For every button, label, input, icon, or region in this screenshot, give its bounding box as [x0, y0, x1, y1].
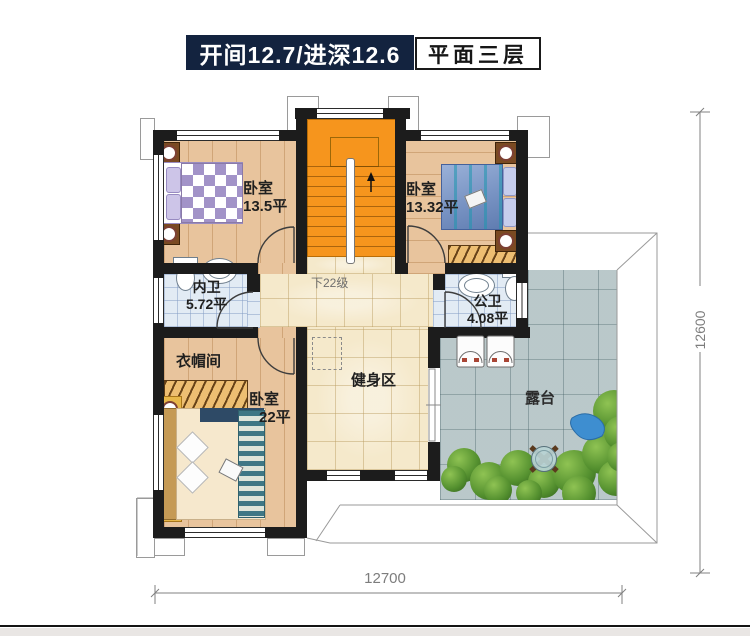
window	[153, 278, 164, 323]
door-threshold	[408, 263, 445, 274]
wall	[153, 141, 164, 155]
window	[395, 470, 427, 481]
divider-line	[0, 625, 750, 627]
room-area: 13.5平	[243, 198, 287, 215]
window	[177, 130, 279, 141]
wall	[433, 274, 445, 290]
room-name: 卧室	[243, 180, 273, 197]
room-area: 4.08平	[467, 310, 508, 326]
window	[516, 283, 528, 318]
room-name: 衣帽间	[176, 353, 221, 370]
wall	[428, 442, 440, 481]
wall	[247, 274, 260, 292]
window	[421, 130, 509, 141]
floor-plan-page: 开间12.7/进深12.6 平面三层	[0, 0, 750, 636]
door-threshold	[247, 292, 260, 328]
wall	[153, 240, 164, 278]
wall	[516, 141, 528, 283]
door-threshold	[258, 263, 296, 274]
label-public-bathroom: 公卫 4.08平	[467, 293, 508, 327]
wall	[153, 130, 177, 141]
wall	[360, 470, 395, 481]
room-name: 卧室	[406, 181, 436, 198]
pillow	[166, 194, 181, 220]
lamp-icon	[498, 233, 514, 249]
wall	[296, 327, 307, 338]
divider-band	[0, 628, 750, 636]
plan-dimensions-title: 开间12.7/进深12.6	[186, 35, 414, 70]
label-bedroom-top-left: 卧室 13.5平	[243, 180, 287, 217]
wall	[428, 338, 440, 368]
room-area: 5.72平	[186, 296, 227, 312]
nightstand	[495, 142, 517, 164]
wall	[296, 108, 307, 263]
dimension-height: 12600	[692, 300, 708, 360]
dimension-width: 12700	[340, 570, 430, 587]
bush-icon	[484, 476, 512, 500]
room-name: 卧室	[249, 391, 279, 408]
room-area: 22平	[249, 409, 291, 426]
room-name: 公卫	[474, 293, 502, 309]
wall	[307, 470, 327, 481]
wall	[395, 108, 406, 263]
label-bedroom-bottom-left: 卧室 22平	[249, 391, 291, 428]
wall	[153, 327, 258, 338]
label-gym: 健身区	[351, 372, 396, 390]
wall	[296, 263, 307, 274]
label-cloakroom: 衣帽间	[176, 353, 221, 371]
label-terrace: 露台	[525, 390, 555, 408]
room-name: 内卫	[193, 279, 221, 295]
wall	[153, 490, 164, 538]
pillow	[503, 167, 517, 196]
wall	[164, 263, 258, 274]
sink-inner	[464, 278, 489, 293]
lamp-icon	[498, 145, 514, 161]
wall	[509, 130, 528, 141]
door-threshold	[433, 290, 445, 328]
bed-quilt-checkered	[181, 163, 243, 223]
wall	[296, 338, 307, 538]
label-stairs-note: 下22级	[311, 274, 348, 291]
terrace-greenery	[440, 338, 617, 500]
window	[153, 415, 164, 490]
wall	[395, 263, 408, 274]
pillow	[503, 198, 517, 227]
window	[153, 155, 164, 240]
room-name: 健身区	[351, 372, 396, 389]
room-name: 露台	[525, 390, 555, 407]
bush-icon	[516, 480, 542, 500]
window	[185, 527, 265, 538]
room-area: 13.32平	[406, 199, 459, 216]
sliding-door-terrace	[426, 369, 441, 441]
door-threshold	[258, 327, 296, 338]
wall	[516, 318, 528, 338]
stair-rail	[346, 158, 355, 264]
window-sill	[267, 538, 305, 556]
nightstand	[495, 230, 517, 252]
wall	[428, 327, 530, 338]
floor-level-title: 平面三层	[415, 37, 541, 70]
attic-hatch-dashed	[312, 337, 342, 370]
pillow	[166, 167, 181, 193]
window	[317, 108, 383, 119]
bush-icon	[441, 466, 467, 492]
wall	[153, 323, 164, 415]
label-bedroom-top-right: 卧室 13.32平	[406, 181, 459, 218]
window	[327, 470, 360, 481]
label-inner-bathroom: 内卫 5.72平	[186, 279, 227, 313]
